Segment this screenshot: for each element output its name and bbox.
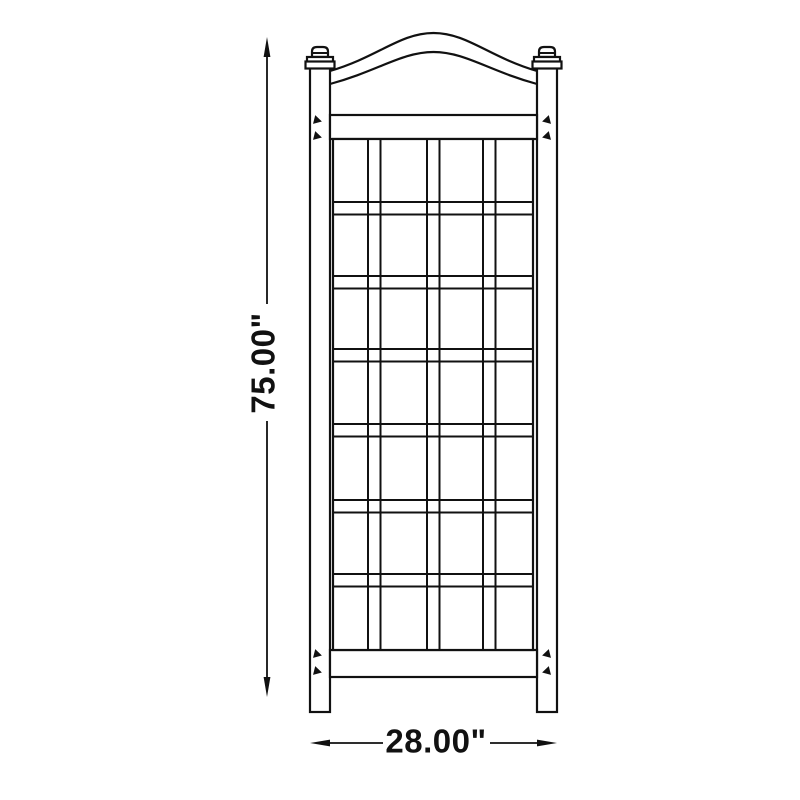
- arch-inner-curve: [330, 52, 537, 84]
- height-dimension: 75.00": [245, 37, 282, 697]
- left-post: [310, 68, 330, 712]
- bottom-rail: [330, 650, 537, 677]
- top-rail: [330, 115, 537, 139]
- trellis-technical-drawing: 75.00" 28.00": [0, 0, 800, 800]
- height-dimension-label: 75.00": [245, 312, 282, 413]
- left-finial: [306, 47, 335, 69]
- right-post: [537, 68, 557, 712]
- trellis-figure: [306, 33, 562, 712]
- right-finial: [533, 47, 562, 69]
- drawing-canvas: 75.00" 28.00": [0, 0, 800, 800]
- left-finial-cap-base: [306, 62, 335, 69]
- dimension-arrow-up-icon: [264, 37, 271, 57]
- lattice-grid: [333, 139, 533, 650]
- right-finial-cap-base: [533, 62, 562, 69]
- width-dimension: 28.00": [310, 723, 557, 760]
- width-dimension-label: 28.00": [385, 723, 486, 760]
- dimension-arrow-right-icon: [537, 740, 557, 747]
- dimension-arrow-down-icon: [264, 677, 271, 697]
- dimension-arrow-left-icon: [310, 740, 330, 747]
